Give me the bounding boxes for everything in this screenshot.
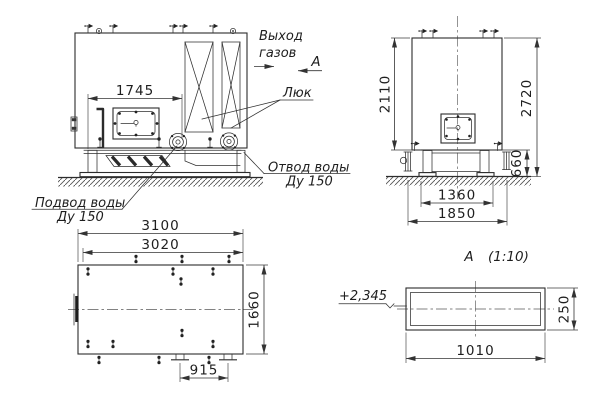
technical-drawing: 1745 Выход газов А Люк Отвод воды Ду 150… (0, 0, 600, 400)
water-supply-label: Ду 150 (56, 210, 104, 225)
dim-text: 3100 (141, 218, 179, 234)
hatch-label: Люк (282, 86, 312, 101)
bolt-icon (208, 137, 213, 147)
gas-outlet-label: газов (259, 46, 296, 61)
valve-icon (179, 24, 188, 33)
valve-icon (418, 29, 427, 38)
bolt-icon (98, 137, 103, 147)
bolt-icon (157, 137, 162, 147)
plan-view: 3100 3020 1660 915 (68, 218, 268, 382)
dim-text: 250 (557, 295, 573, 324)
dim-2110: 2110 (378, 38, 422, 150)
dim-text: 2720 (519, 79, 535, 117)
manhole-front (113, 108, 159, 139)
base-frame-side (419, 151, 494, 177)
gas-outlet-label: Выход (259, 29, 303, 44)
elevation-text: +2,345 (339, 289, 387, 304)
boiler-body-side (412, 38, 502, 150)
water-supply-label: Подвод воды (35, 196, 125, 211)
front-view: 1745 (58, 24, 263, 187)
drawing-svg: 1745 Выход газов А Люк Отвод воды Ду 150… (0, 0, 600, 400)
valve-icon (479, 29, 488, 38)
dim-text: 1660 (247, 290, 263, 328)
gas-duct-hatches (185, 42, 240, 132)
boiler-body-front (75, 33, 247, 148)
dim-text: 1010 (456, 343, 494, 359)
valve-icon (109, 24, 118, 33)
plan-left-plate (75, 296, 78, 322)
water-outlet-label: Ду 150 (285, 175, 333, 190)
dim-text: 1850 (438, 206, 476, 222)
section-title-scale: (1:10) (488, 249, 529, 265)
valve-icon (169, 24, 178, 33)
side-view: 2110 2720 660 1360 1850 (378, 16, 542, 226)
dim-text: 1360 (438, 188, 476, 204)
dim-250: 250 (547, 288, 578, 330)
dim-660: 660 (490, 149, 530, 178)
valve-icon (209, 24, 218, 33)
section-title-letter: А (463, 249, 473, 265)
ground-front (58, 178, 263, 187)
manhole-side (441, 114, 475, 143)
top-valve-icons (84, 24, 235, 34)
valve-icon (84, 24, 93, 33)
drain-stubs (171, 354, 237, 360)
dim-text: 3020 (141, 237, 179, 253)
dim-3020: 3020 (83, 237, 243, 262)
dim-text: 1745 (116, 83, 154, 99)
dim-1660: 1660 (246, 265, 268, 354)
elevation-mark: +2,345 (339, 289, 407, 308)
section-view: А (1:10) +2,345 250 1010 (339, 249, 578, 363)
valve-icon (494, 141, 503, 150)
section-cut-letter: А (310, 54, 320, 70)
base-frame-front (80, 150, 250, 176)
vent-icon (232, 30, 234, 32)
vent-icon (98, 30, 100, 32)
dim-text: 2110 (378, 75, 394, 113)
callouts: Выход газов А Люк Отвод воды Ду 150 Подв… (32, 29, 350, 225)
dim-text: 660 (509, 149, 525, 178)
valve-icon (429, 29, 438, 38)
side-bracket (71, 117, 77, 131)
dim-915: 915 (180, 363, 228, 383)
valve-icon (490, 29, 499, 38)
dim-text: 915 (190, 363, 219, 379)
side-flange-left (400, 141, 419, 171)
dim-1010: 1010 (406, 333, 545, 364)
